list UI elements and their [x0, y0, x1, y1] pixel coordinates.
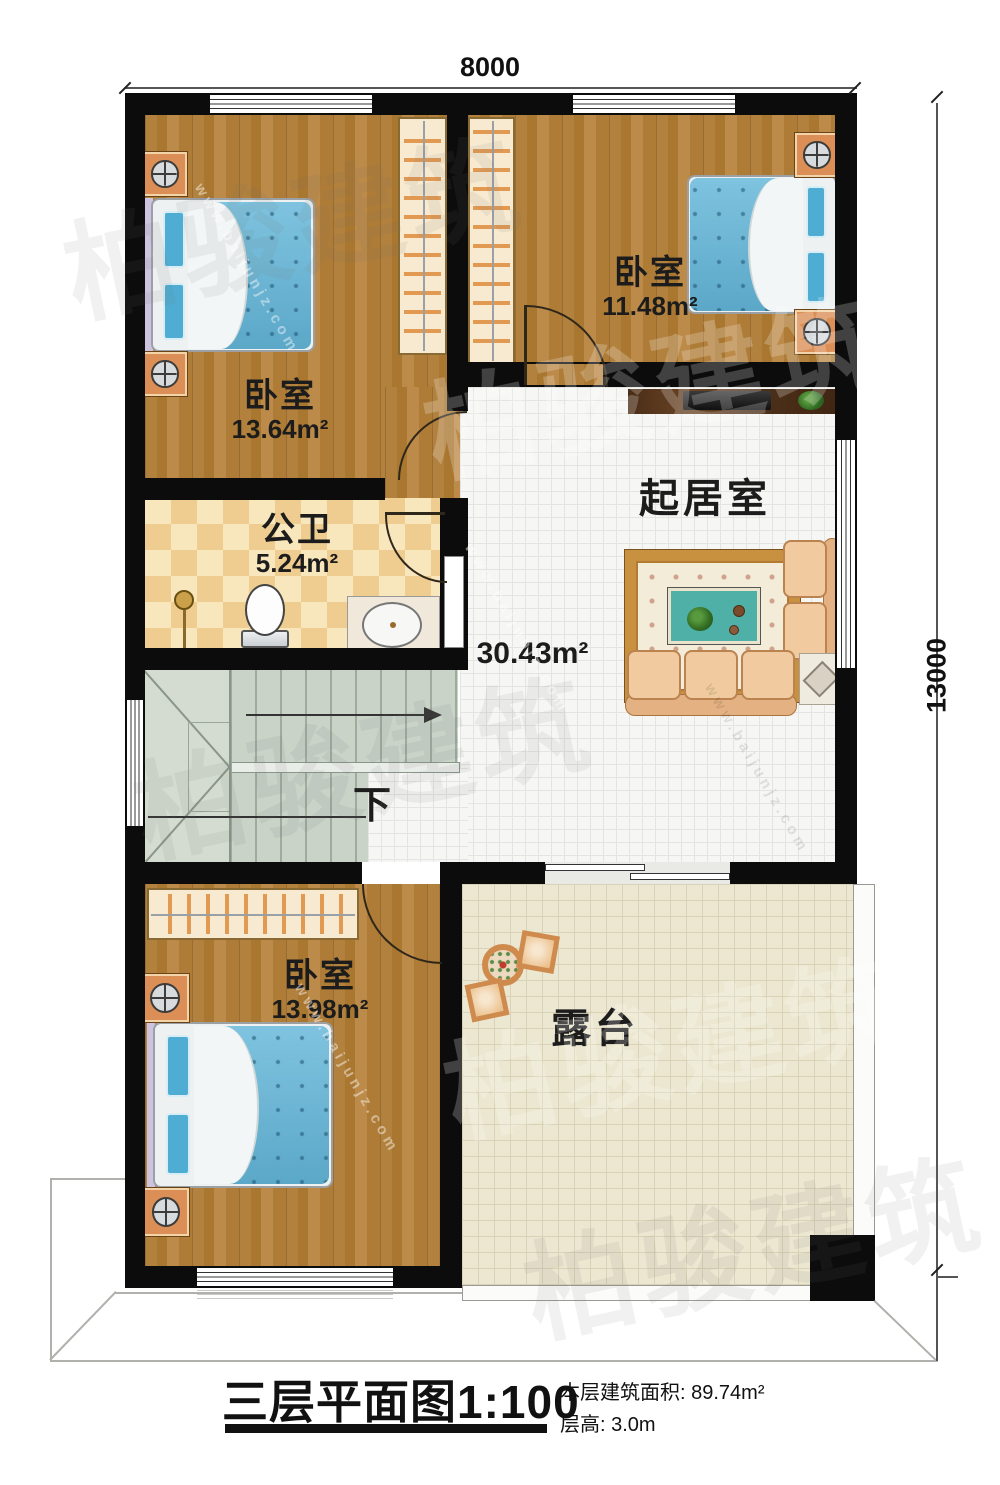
cup-icon	[733, 605, 745, 617]
stair-arrow-head-icon	[424, 707, 442, 723]
room-area: 13.64m²	[180, 415, 380, 443]
wardrobe-bedroom-bottom	[147, 888, 359, 940]
room-name: 公卫	[207, 512, 387, 549]
ground-outline	[115, 1292, 462, 1294]
wall-bedroom2-south	[447, 362, 857, 387]
plan-title-text: 三层平面图	[222, 1376, 457, 1428]
coffee-table	[668, 588, 760, 644]
room-label-living: 起居室	[610, 478, 800, 521]
room-area: 13.98m²	[225, 995, 415, 1023]
room-name: 卧室	[180, 378, 380, 415]
sliding-door-panel	[630, 873, 730, 880]
floor-drain-icon	[174, 590, 194, 610]
room-area: 11.48m²	[555, 292, 745, 320]
floor-area-label: 本层建筑面积:	[560, 1382, 686, 1404]
lamp-icon	[803, 141, 830, 168]
pillow	[163, 283, 185, 340]
dimension-height-label: 13000	[922, 621, 953, 731]
ground-outline-diagonal	[49, 1291, 116, 1361]
nightstand	[141, 974, 189, 1022]
lamp-icon	[803, 318, 830, 345]
room-label-bedroom-bottom: 卧室 13.98m²	[225, 958, 415, 1023]
window-top-left	[210, 95, 372, 113]
wall-closet-divider	[447, 115, 468, 365]
sofa-cushion	[783, 540, 827, 598]
ground-outline	[50, 1178, 125, 1180]
wall-bathroom-south	[125, 648, 468, 670]
nightstand	[143, 152, 187, 196]
wall-stub-bedroom1	[447, 387, 468, 411]
terrace-column	[810, 1235, 875, 1301]
sink-icon	[362, 602, 422, 648]
title-underline-bar	[225, 1424, 547, 1433]
sliding-door-panel	[545, 864, 645, 871]
wall-living-south	[730, 862, 857, 884]
table-flowers-icon	[687, 607, 713, 631]
faucet-icon	[390, 622, 396, 628]
ground-outline	[50, 1178, 52, 1362]
floor-height-label: 层高:	[560, 1414, 606, 1436]
room-label-terrace: 露台	[520, 1008, 670, 1051]
bed-sheet	[748, 178, 803, 310]
pillow	[166, 1113, 191, 1175]
window-left-stair	[127, 700, 143, 826]
pillow	[166, 1035, 191, 1097]
floor-area-value: 89.74m²	[691, 1382, 764, 1404]
stair-down-label: 下	[348, 786, 396, 827]
toilet-icon	[245, 584, 285, 636]
room-area-living: 30.43m²	[440, 638, 625, 670]
nightstand	[143, 1188, 189, 1236]
dimension-tick-cross	[938, 1276, 958, 1278]
sofa-three-seat	[625, 650, 797, 716]
floor-height-info: 层高: 3.0m	[560, 1408, 656, 1437]
table-lamp-icon	[803, 661, 839, 697]
plant-icon	[798, 391, 824, 410]
wall-bathroom-north	[125, 478, 385, 500]
lamp-icon	[150, 983, 180, 1013]
wall-left	[125, 93, 145, 1288]
duct-shaft	[444, 556, 464, 648]
door-leaf-bedroom-top-right	[524, 305, 527, 385]
sofa-cushion	[684, 650, 738, 700]
room-name: 卧室	[225, 958, 415, 995]
wall-stair-south-1	[125, 862, 362, 884]
dimension-line-top	[125, 87, 857, 89]
room-label-bathroom: 公卫 5.24m²	[207, 512, 387, 577]
terrace-chair-icon	[464, 977, 509, 1022]
stair-landing-inner-rect	[188, 722, 232, 812]
sofa-two-seat	[783, 538, 841, 662]
room-name: 卧室	[555, 255, 745, 292]
terrace-chair-icon	[516, 930, 560, 974]
window-bottom-bedroom	[197, 1268, 393, 1286]
lamp-icon	[151, 360, 178, 387]
room-area: 5.24m²	[207, 549, 387, 577]
sofa-cushion	[627, 650, 681, 700]
closet-rod	[423, 121, 425, 350]
pillow	[806, 186, 826, 237]
closet-rod	[151, 914, 355, 916]
nightstand	[795, 310, 839, 354]
dimension-width-label: 8000	[430, 52, 550, 83]
wall-bedroom3-east	[440, 884, 462, 1266]
stair-up-arrow-line	[246, 714, 426, 716]
cup-icon	[729, 625, 739, 635]
pillow	[163, 211, 185, 268]
bed-bottom	[153, 1022, 333, 1188]
room-label-bedroom-top-right: 卧室 11.48m²	[555, 255, 745, 320]
lamp-icon	[152, 1197, 181, 1227]
ground-outline	[50, 1360, 938, 1362]
dimension-tick	[931, 91, 944, 104]
drain-stem	[183, 610, 186, 648]
stair-down-leader-line	[148, 816, 366, 818]
pillow	[806, 251, 826, 302]
floor-plan-canvas: 下	[0, 0, 1000, 1485]
lamp-icon	[151, 160, 178, 187]
dimension-line-right	[936, 103, 938, 1361]
window-right-living	[837, 440, 855, 668]
tv-icon	[683, 391, 771, 410]
nightstand	[795, 133, 839, 177]
stair-edge-line	[229, 670, 231, 862]
wardrobe-bedroom-top-right	[468, 117, 515, 365]
window-top-right	[573, 95, 735, 113]
wall-stair-south-2	[440, 862, 545, 884]
floor-height-value: 3.0m	[611, 1414, 655, 1436]
floor-area-info: 本层建筑面积: 89.74m²	[560, 1376, 765, 1405]
door-leaf-bathroom	[385, 512, 445, 515]
room-label-bedroom-top-left: 卧室 13.64m²	[180, 378, 380, 443]
ground-outline-diagonal	[874, 1300, 937, 1361]
wardrobe-bedroom-top-left	[398, 117, 447, 355]
sofa-cushion	[741, 650, 795, 700]
closet-rod	[492, 121, 494, 360]
bed-top-left	[151, 198, 315, 352]
plan-title: 三层平面图1:100	[222, 1366, 580, 1432]
stair-handrail	[230, 762, 460, 773]
